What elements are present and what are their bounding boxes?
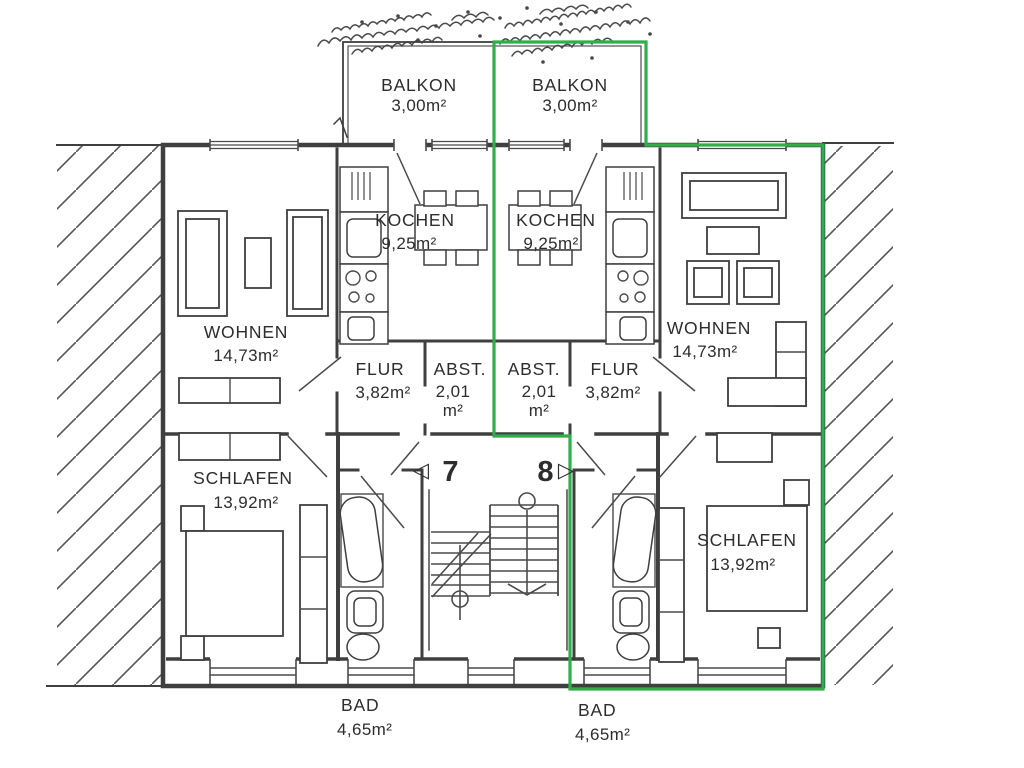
coffee-table-right-wohnen (707, 227, 759, 254)
nightstand (784, 480, 809, 505)
abst-right-area-unit: m² (529, 401, 550, 420)
abst-left-name: ABST. (434, 359, 487, 379)
wohnen-left-area: 14,73m² (213, 346, 278, 365)
flur-left-name: FLUR (356, 359, 405, 379)
flur-right-area: 3,82m² (585, 383, 640, 402)
wardrobe-right (659, 508, 684, 662)
wohnen-right-name: WOHNEN (667, 318, 752, 338)
balcony-corner-mark (334, 118, 347, 137)
table-left-wohnen (245, 238, 271, 288)
unit-8-door-arrow-icon: ▷ (558, 458, 575, 482)
kochen-right-area: 9,25m² (523, 234, 578, 253)
flur-left-area: 3,82m² (355, 383, 410, 402)
kochen-left-name: KOCHEN (375, 210, 455, 230)
unit-8-number: 8 (537, 456, 554, 488)
toilet-left (347, 634, 379, 660)
dresser-right (717, 433, 772, 462)
schlafen-right-name: SCHLAFEN (697, 530, 797, 550)
unit-7-door-arrow-icon: ◁ (413, 458, 430, 482)
stool-right (758, 628, 780, 648)
vegetation-sketch (318, 4, 652, 64)
toilet-right (617, 634, 649, 660)
bed-left (186, 531, 283, 636)
bad-left-name: BAD (341, 695, 379, 715)
nightstand (181, 506, 204, 531)
abst-right-area: 2,01 (522, 382, 557, 401)
wohnen-left-name: WOHNEN (204, 322, 289, 342)
balcony-door-kochen-right (570, 139, 602, 151)
wohnen-right-area: 14,73m² (672, 342, 737, 361)
abst-left-area-unit: m² (443, 401, 464, 420)
wardrobe-left (300, 505, 327, 663)
flur-right-name: FLUR (591, 359, 640, 379)
sink-right-kitchen (613, 219, 647, 257)
schlafen-left-name: SCHLAFEN (193, 468, 293, 488)
unit-7-number: 7 (442, 456, 459, 488)
abst-left-area: 2,01 (436, 382, 471, 401)
schlafen-right-area: 13,92m² (710, 555, 775, 574)
bad-left-area: 4,65m² (337, 720, 392, 739)
abst-right-name: ABST. (508, 359, 561, 379)
bad-right-name: BAD (578, 700, 616, 720)
balkon-left-area: 3,00m² (391, 96, 446, 115)
balkon-right-area: 3,00m² (542, 96, 597, 115)
balcony-door-kochen-left (394, 139, 426, 151)
balkon-left-name: BALKON (381, 75, 457, 95)
kochen-right-name: KOCHEN (516, 210, 596, 230)
nightstand (181, 636, 204, 660)
schlafen-left-area: 13,92m² (213, 493, 278, 512)
window-kochen-right (509, 139, 564, 151)
floor-plan-page: BALKON 3,00m² BALKON 3,00m² KOCHEN 9,25m… (0, 0, 1024, 768)
window-kochen-left (432, 139, 487, 151)
balkon-right-name: BALKON (532, 75, 608, 95)
floor-plan-drawing: BALKON 3,00m² BALKON 3,00m² KOCHEN 9,25m… (0, 0, 1024, 768)
kochen-left-area: 9,25m² (381, 234, 436, 253)
stove-right-kitchen (606, 264, 654, 312)
l-sofa-horizontal (728, 378, 806, 406)
hatched-area-right (823, 143, 893, 685)
bad-right-area: 4,65m² (575, 725, 630, 744)
window-wohnen-left (210, 139, 298, 151)
stove-left-kitchen (340, 264, 388, 312)
